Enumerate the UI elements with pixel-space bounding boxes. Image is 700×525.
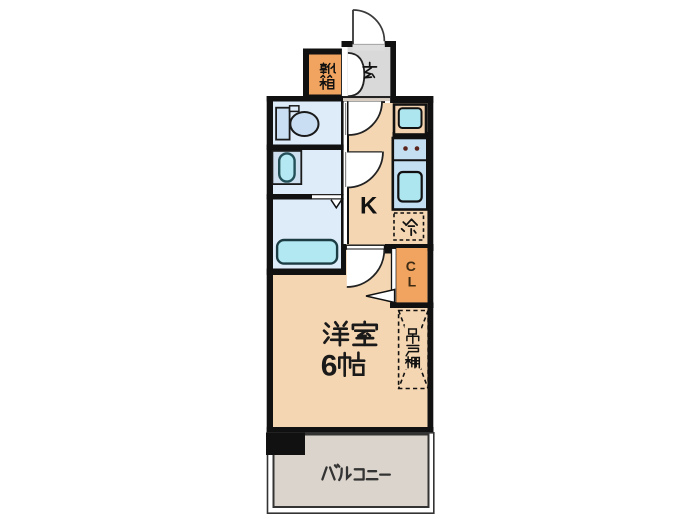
- svg-text:L: L: [408, 273, 417, 289]
- svg-text:C: C: [406, 258, 416, 274]
- svg-text:6: 6: [321, 350, 338, 383]
- svg-text:K: K: [360, 193, 378, 220]
